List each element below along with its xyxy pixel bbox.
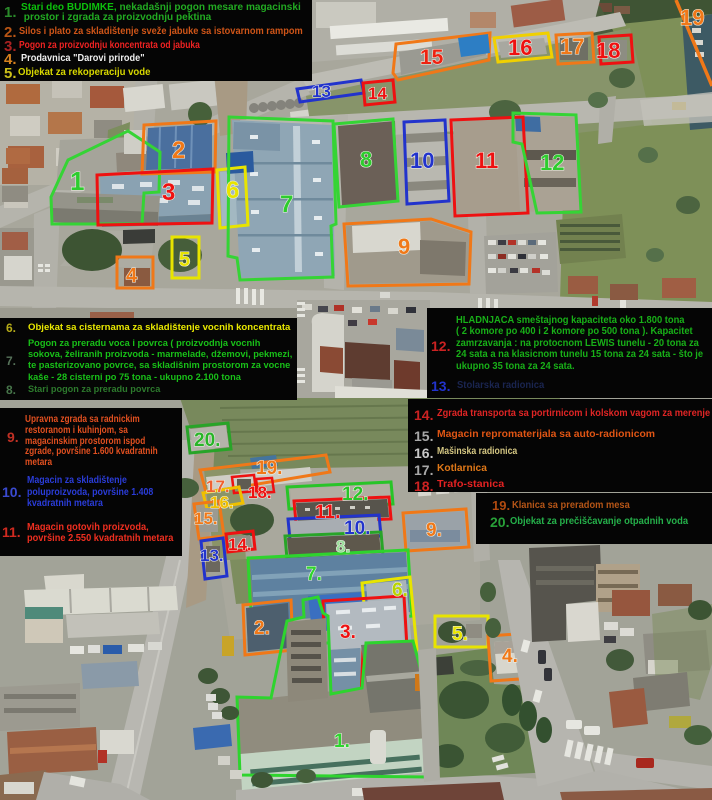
svg-text:13.: 13.	[200, 546, 224, 565]
svg-text:7: 7	[280, 191, 293, 218]
svg-text:17: 17	[560, 34, 584, 59]
svg-text:12.: 12.	[342, 484, 368, 505]
svg-text:14: 14	[368, 84, 387, 103]
svg-text:3: 3	[162, 179, 175, 206]
svg-text:5.: 5.	[452, 624, 468, 645]
svg-text:15: 15	[420, 46, 444, 69]
svg-text:2.: 2.	[254, 618, 270, 639]
svg-text:8: 8	[360, 147, 372, 172]
svg-text:4: 4	[126, 265, 138, 287]
svg-text:9: 9	[398, 234, 410, 259]
svg-text:6.: 6.	[392, 580, 408, 601]
svg-text:10.: 10.	[344, 518, 370, 539]
svg-text:3.: 3.	[340, 622, 356, 643]
svg-text:13: 13	[312, 82, 331, 101]
svg-text:14.: 14.	[228, 535, 252, 554]
svg-text:10: 10	[410, 148, 434, 173]
svg-text:18: 18	[596, 38, 620, 63]
svg-text:16: 16	[508, 35, 532, 60]
svg-text:18.: 18.	[248, 483, 272, 502]
svg-text:9.: 9.	[426, 520, 442, 541]
svg-text:11.: 11.	[315, 502, 340, 523]
svg-text:5: 5	[179, 249, 190, 271]
svg-text:2: 2	[172, 137, 185, 164]
svg-text:4.: 4.	[502, 646, 518, 667]
svg-text:12: 12	[540, 150, 564, 175]
svg-text:8.: 8.	[336, 537, 350, 556]
svg-text:19.: 19.	[256, 458, 282, 479]
svg-text:19: 19	[680, 5, 704, 30]
svg-text:6: 6	[226, 177, 239, 204]
svg-text:11: 11	[475, 148, 498, 173]
svg-text:20.: 20.	[194, 430, 220, 451]
svg-text:15.: 15.	[194, 509, 218, 528]
svg-text:1: 1	[70, 166, 84, 196]
svg-text:1.: 1.	[334, 731, 350, 752]
svg-text:7.: 7.	[306, 564, 322, 585]
